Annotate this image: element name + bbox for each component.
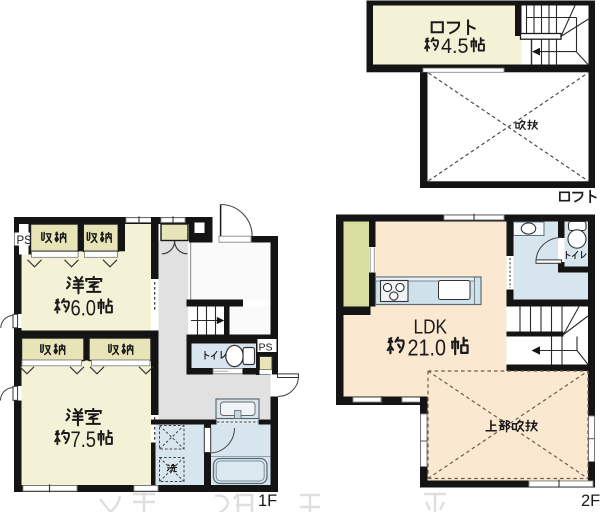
svg-text:6.0: 6.0 (71, 296, 97, 321)
svg-text:21.0: 21.0 (408, 335, 447, 361)
svg-text:PS: PS (259, 342, 273, 354)
svg-text:1F: 1F (258, 492, 277, 510)
svg-text:7.5: 7.5 (71, 427, 97, 452)
svg-text:4.5: 4.5 (441, 35, 469, 58)
svg-text:2F: 2F (581, 492, 600, 510)
